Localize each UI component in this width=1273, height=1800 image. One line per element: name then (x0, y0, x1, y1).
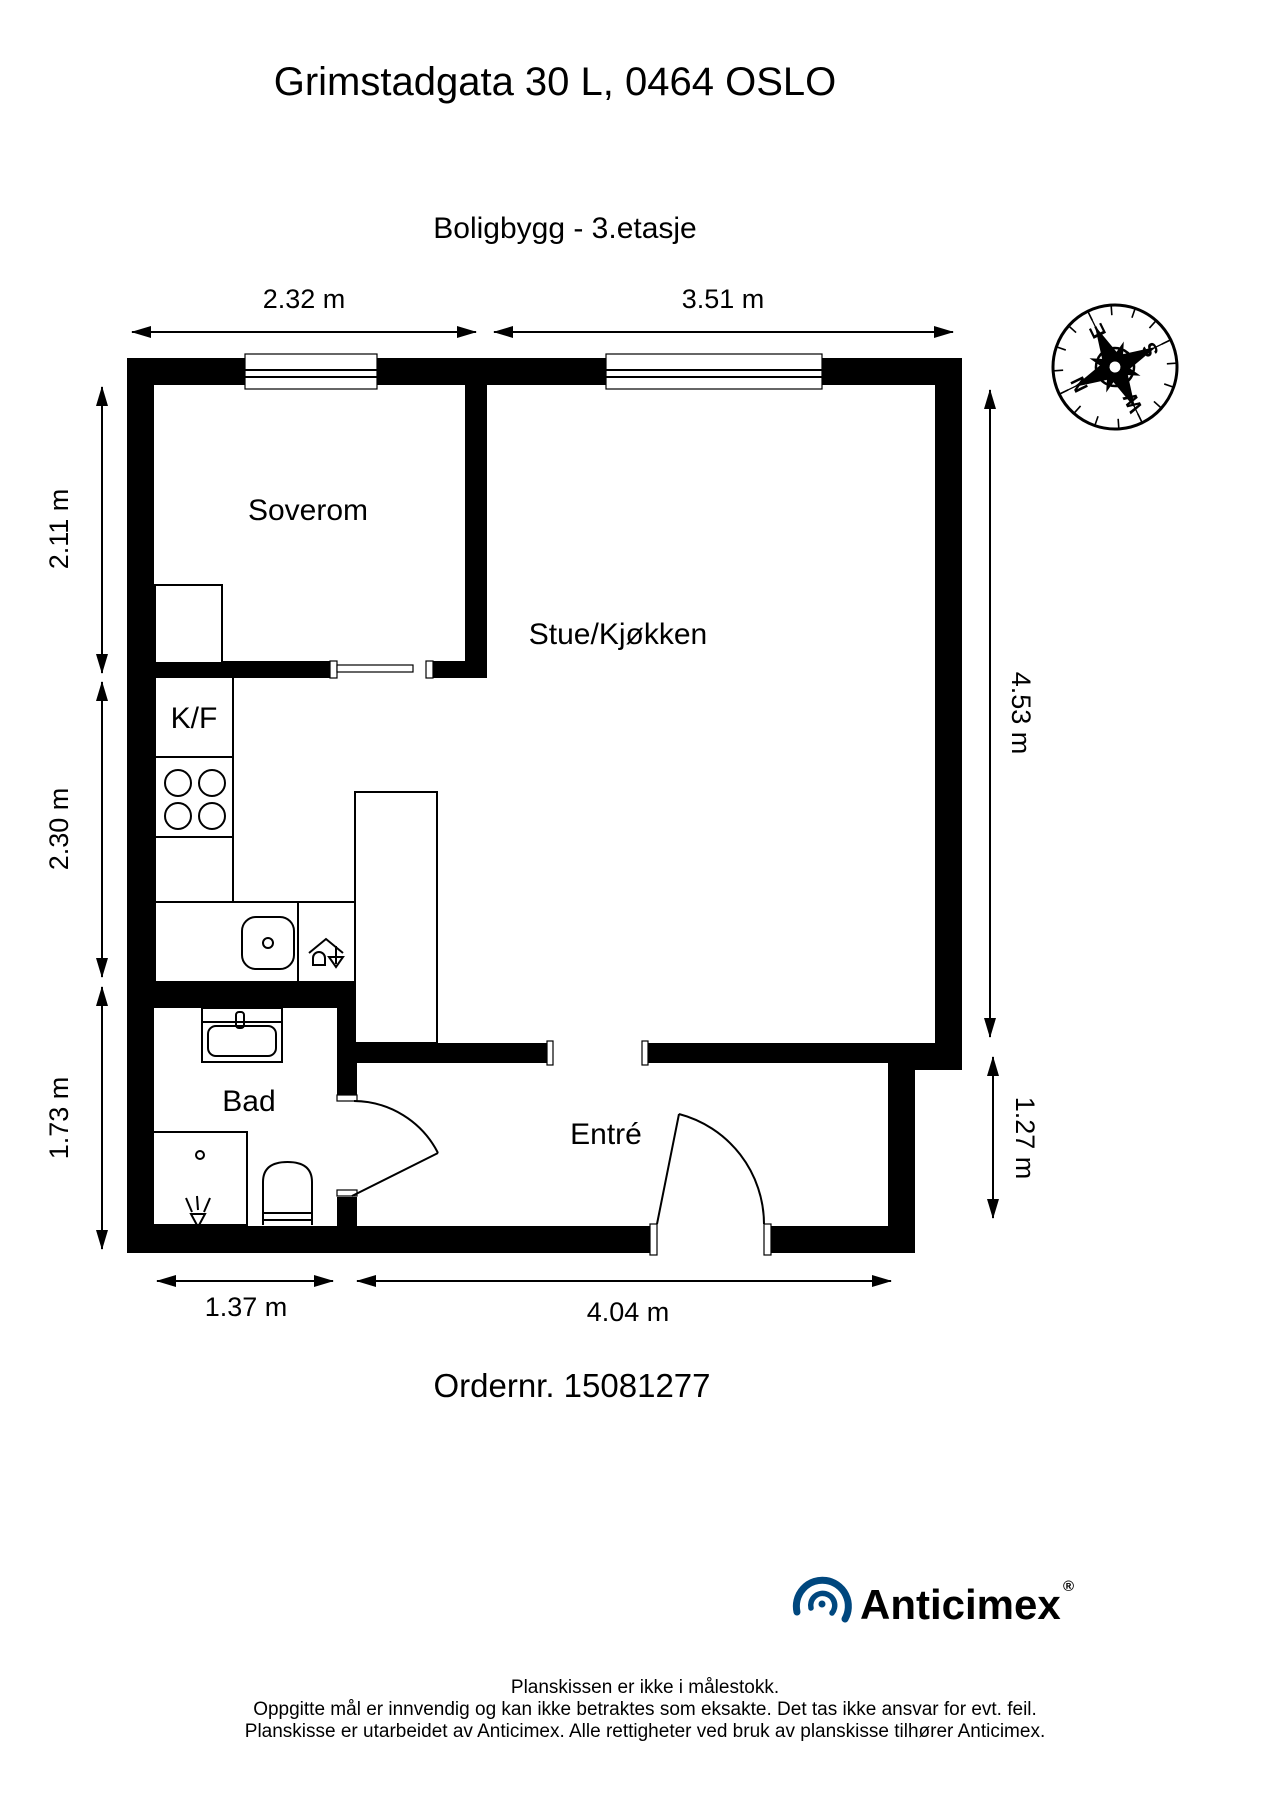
anticimex-wordmark: Anticimex (860, 1581, 1061, 1628)
dimension-lines (102, 332, 993, 1281)
entrance-door-jamb-right (764, 1224, 771, 1255)
disclaimer-line-2: Oppgitte mål er innvendig og kan ikke be… (253, 1699, 1037, 1720)
wall-bedroom-living-divider (465, 358, 487, 678)
bathroom-door-swing (352, 1101, 438, 1196)
fixtures (153, 585, 437, 1227)
anticimex-logo: Anticimex ® (796, 1578, 1074, 1628)
page-title: Grimstadgata 30 L, 0464 OSLO (274, 60, 837, 104)
wall-bedroom-bottom-stub (432, 661, 487, 678)
living-window (606, 354, 822, 389)
room-label-living-kitchen: Stue/Kjøkken (529, 618, 707, 651)
disclaimer-line-3: Planskisse er utarbeidet av Anticimex. A… (245, 1721, 1045, 1742)
page-subtitle: Boligbygg - 3.etasje (433, 212, 697, 245)
room-label-fridge-freezer: K/F (171, 702, 218, 735)
kitchen-counter (155, 902, 355, 982)
shower-icon (153, 1132, 247, 1227)
compass-s-label: S (1138, 339, 1164, 361)
washbasin-icon (202, 1008, 282, 1062)
bathroom-door-jamb-top (337, 1095, 357, 1101)
dim-label-right-upper: 4.53 m (1006, 672, 1036, 755)
dim-label-left-upper: 2.11 m (44, 489, 74, 570)
registered-mark: ® (1063, 1578, 1074, 1595)
floorplan-page: Grimstadgata 30 L, 0464 OSLO Boligbygg -… (0, 0, 1273, 1800)
room-label-entry: Entré (570, 1118, 642, 1151)
toilet-icon (263, 1162, 312, 1225)
wall-left (127, 358, 154, 1253)
bedroom-door-leaf (337, 665, 413, 672)
wardrobe (155, 585, 222, 663)
entry-passage-jamb-left (547, 1041, 553, 1065)
anticimex-swirl-icon (796, 1580, 848, 1619)
wall-entry-top-left (337, 1043, 547, 1063)
room-label-bedroom: Soverom (248, 494, 368, 527)
floorplan-drawing: Grimstadgata 30 L, 0464 OSLO Boligbygg -… (0, 0, 1273, 1800)
stove-icon (155, 757, 233, 837)
order-number: Ordernr. 15081277 (433, 1367, 710, 1404)
bedroom-door-jamb-left (330, 661, 337, 678)
wall-bottom-left (127, 1226, 655, 1253)
wall-entry-top-right (648, 1043, 888, 1063)
dim-label-bottom-right: 4.04 m (587, 1297, 670, 1327)
kitchen-cabinet (155, 837, 233, 902)
compass-rose-icon: N E S W (1032, 284, 1198, 450)
bedroom-door-jamb-right (426, 661, 433, 678)
dim-label-top-right: 3.51 m (682, 284, 765, 314)
dim-label-left-lower: 1.73 m (44, 1077, 74, 1160)
wall-bathroom-top (127, 982, 357, 1008)
dim-label-right-lower: 1.27 m (1010, 1097, 1040, 1180)
bedroom-window (245, 354, 377, 389)
wall-bathroom-right-lower (337, 1197, 357, 1226)
tall-cabinet (355, 792, 437, 1043)
entrance-door-jamb-left (650, 1224, 657, 1255)
entry-passage-jamb-right (642, 1041, 648, 1065)
entrance-door-swing (657, 1114, 764, 1224)
compass-e-label: E (1086, 320, 1112, 342)
wall-right-main (935, 358, 962, 1070)
dim-label-bottom-left: 1.37 m (205, 1292, 288, 1322)
walls (127, 358, 962, 1253)
dim-label-left-middle: 2.30 m (44, 788, 74, 871)
wall-right-entry (888, 1043, 915, 1253)
dim-label-top-left: 2.32 m (263, 284, 346, 314)
room-label-bathroom: Bad (222, 1085, 275, 1118)
disclaimer-line-1: Planskissen er ikke i målestokk. (511, 1677, 779, 1698)
